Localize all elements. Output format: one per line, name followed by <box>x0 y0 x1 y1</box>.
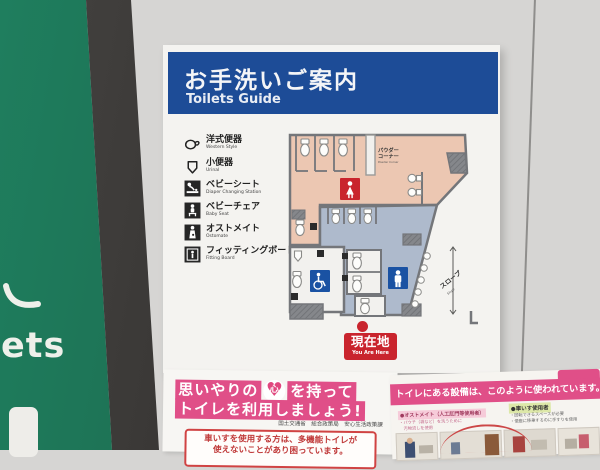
baby-seat-map-icon-2 <box>342 253 348 259</box>
fixture-blob <box>565 439 577 449</box>
legend-item-fitting-board: フィッティングボード Fitting Board <box>184 246 295 263</box>
fitting-board-map-icon <box>291 293 298 300</box>
legend-item-ostomate: オストメイト Ostomate <box>184 224 260 241</box>
you-are-here-label: 現在地 <box>344 333 397 350</box>
legend-label: 洋式便器 <box>206 135 242 145</box>
ostomate-icon <box>184 224 201 241</box>
floor-map: パウダー コーナー Powder Corner <box>281 133 479 327</box>
legend-label: 小便器 <box>206 158 233 168</box>
heart-kanji: 心 <box>263 382 285 398</box>
ostomate-notes: ・パウチ（袋など）を洗うために 汚物流しを使用 <box>399 418 462 431</box>
facilities-poster: トイレにある設備は、このように使われています。 ●オストメイト（人工肛門等使用者… <box>390 369 600 460</box>
notice-box: 車いすを使用する方は、多機能トイレが 使えないことがあり困っています。 <box>184 429 377 470</box>
legend-sublabel: Urinal <box>206 168 233 173</box>
service-box-womens <box>292 210 305 219</box>
legend-item-diaper-changing: ベビーシート Diaper Changing Station <box>184 180 261 197</box>
diaper-map-icon <box>342 275 348 281</box>
legend-label: オストメイト <box>206 224 260 234</box>
fixture-blob <box>419 445 433 453</box>
illustration-panel <box>396 432 439 461</box>
slope-sublabel: Slope <box>446 287 455 296</box>
powder-corner-label-1: パウダー <box>378 146 399 154</box>
headline-chip: トイレを利用しましょう! <box>175 399 365 422</box>
wheelchair-sign <box>310 270 330 292</box>
western-toilet-icon <box>184 135 201 152</box>
mens-toilet-row-icons <box>332 209 372 224</box>
sign-subtitle: Toilets Guide <box>186 92 281 107</box>
slope-wall <box>471 311 478 323</box>
sign-title: お手洗いご案内 <box>184 61 359 95</box>
headline-chip: を持って <box>287 381 357 402</box>
figure-blob <box>578 434 588 448</box>
mens-bottom-stall <box>355 296 385 316</box>
you-are-here-sublabel: You Are Here <box>344 351 397 356</box>
poster-credit: 国土交通省 総合政策局 安心生活政策課 <box>278 419 383 428</box>
powder-corner-sublabel: Powder Corner <box>378 160 399 164</box>
green-wall-pictogram-arc <box>2 278 44 320</box>
baby-seat-icon <box>184 202 201 219</box>
legend-item-baby-seat: ベビーチェア Baby Seat <box>184 202 260 219</box>
poster-headline-line2: トイレを利用しましょう! <box>175 399 365 422</box>
accessible-toilet-icon <box>293 272 302 288</box>
powder-corner-label-2: コーナー <box>378 153 399 160</box>
headline-chip: 思いやりの <box>175 380 261 401</box>
legend-sublabel: Ostomate <box>206 234 260 239</box>
heart-icon: ♥ 心 <box>263 380 285 402</box>
you-are-here-badge: 現在地 You Are Here <box>344 333 397 360</box>
legend-label: ベビーチェア <box>206 202 260 212</box>
wheelchair-user-notes: ・回転できるスペースが必要 ・便座に移乗するのに手すりを使用 <box>510 410 577 423</box>
mens-sign <box>388 267 408 289</box>
legend-item-western-style: 洋式便器 Western Style <box>184 135 242 152</box>
fixture-blob <box>531 439 547 449</box>
legend-sublabel: Baby Seat <box>206 212 260 217</box>
service-box-1 <box>403 234 421 245</box>
womens-toilet-icons <box>301 139 348 156</box>
illustration-panel <box>557 427 600 456</box>
notice-line: 使えないことがあり困っています。 <box>186 445 374 459</box>
mens-bottom-toilet <box>361 299 370 314</box>
fitting-board-icon <box>184 246 201 263</box>
baby-seat-map-icon <box>317 250 324 257</box>
slope-label: スロープ <box>438 268 464 291</box>
diaper-changing-icon <box>184 180 201 197</box>
service-area-top-right <box>447 153 467 173</box>
legend-item-urinal: 小便器 Urinal <box>184 158 233 175</box>
legend-sublabel: Western Style <box>206 145 242 150</box>
legend-label: ベビーシート <box>206 180 261 190</box>
wall-seam-line <box>520 0 536 390</box>
toilets-partial-text: ets <box>1 326 65 366</box>
toilets-guide-sign: お手洗いご案内 Toilets Guide 洋式便器 Western Style… <box>163 45 500 373</box>
you-are-here-dot <box>357 321 368 332</box>
fitting-board-map-icon-2 <box>310 223 317 230</box>
courtesy-poster: 思いやりの ♥ 心 を持って トイレを利用しましょう! 国土交通省 総合政策局 … <box>162 369 397 454</box>
sign-header: お手洗いご案内 Toilets Guide <box>168 52 498 114</box>
poster-banner-text: トイレにある設備は、このように使われています。 <box>390 378 600 406</box>
powder-corner-pillar <box>366 135 375 175</box>
legend-sublabel: Diaper Changing Station <box>206 190 261 195</box>
urinal-icon <box>184 158 201 175</box>
womens-sign <box>340 178 360 200</box>
service-box-bottom-left <box>290 304 323 319</box>
womens-annex <box>296 220 304 236</box>
poster-banner: トイレにある設備は、このように使われています。 <box>390 378 600 406</box>
